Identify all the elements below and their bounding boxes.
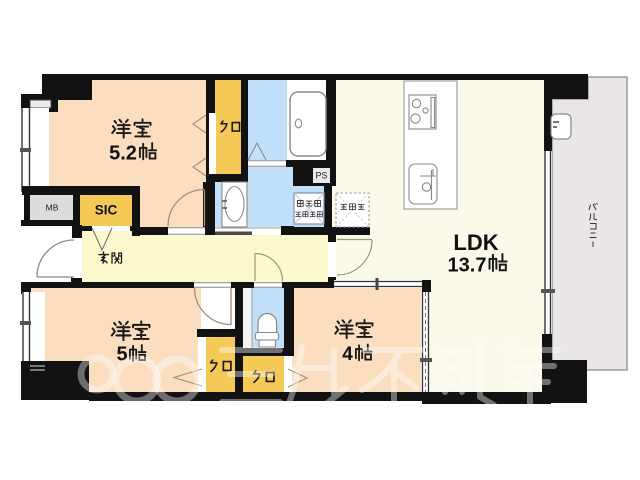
svg-text:LDK: LDK <box>453 230 498 255</box>
svg-text:4: 4 <box>342 344 353 365</box>
svg-text:SIC: SIC <box>95 203 118 218</box>
svg-text:5.2: 5.2 <box>109 143 137 165</box>
svg-text:PS: PS <box>315 171 327 181</box>
svg-text:13.7: 13.7 <box>448 255 487 277</box>
svg-text:MB: MB <box>46 203 59 213</box>
